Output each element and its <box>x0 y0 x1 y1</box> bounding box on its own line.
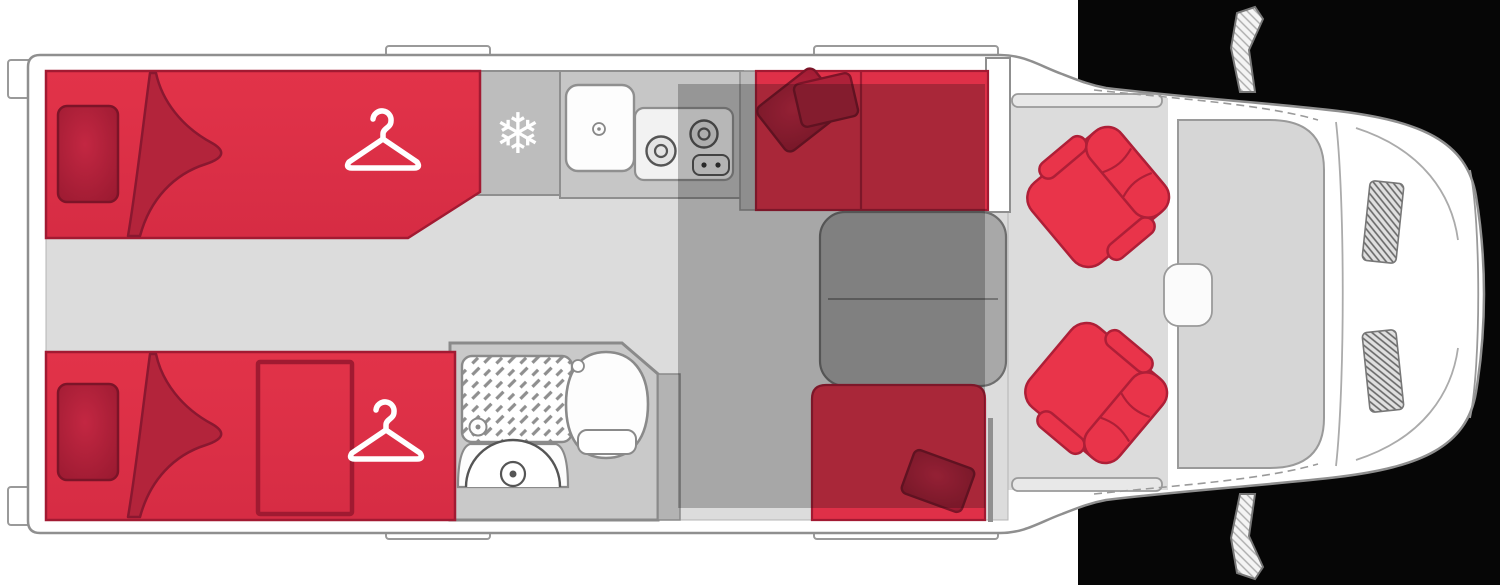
motorhome-floorplan: ❄ <box>0 0 1500 585</box>
snowflake-icon: ❄ <box>495 102 542 167</box>
toilet-seat <box>578 430 636 454</box>
sink-drain-dot <box>597 127 601 131</box>
burner-left <box>647 137 676 166</box>
center-console <box>1164 264 1212 326</box>
headlight-top <box>1362 180 1404 263</box>
washbasin-drain-dot <box>510 471 517 478</box>
bathroom-side-cabinet <box>658 374 680 520</box>
headlight-bottom <box>1362 329 1404 412</box>
floorplan-svg: ❄ <box>0 0 1500 585</box>
bed-bottom-pillow <box>58 384 118 480</box>
toilet-flush <box>572 360 584 372</box>
shower-drain-dot <box>476 425 481 430</box>
bed-top-pillow <box>58 106 118 202</box>
bathroom <box>450 343 680 520</box>
wall-beside-dinette <box>986 58 1010 212</box>
cab-door-step-top <box>1012 94 1162 107</box>
drop-down-bed-overlay <box>678 84 985 508</box>
wall-beside-seat <box>988 418 993 522</box>
